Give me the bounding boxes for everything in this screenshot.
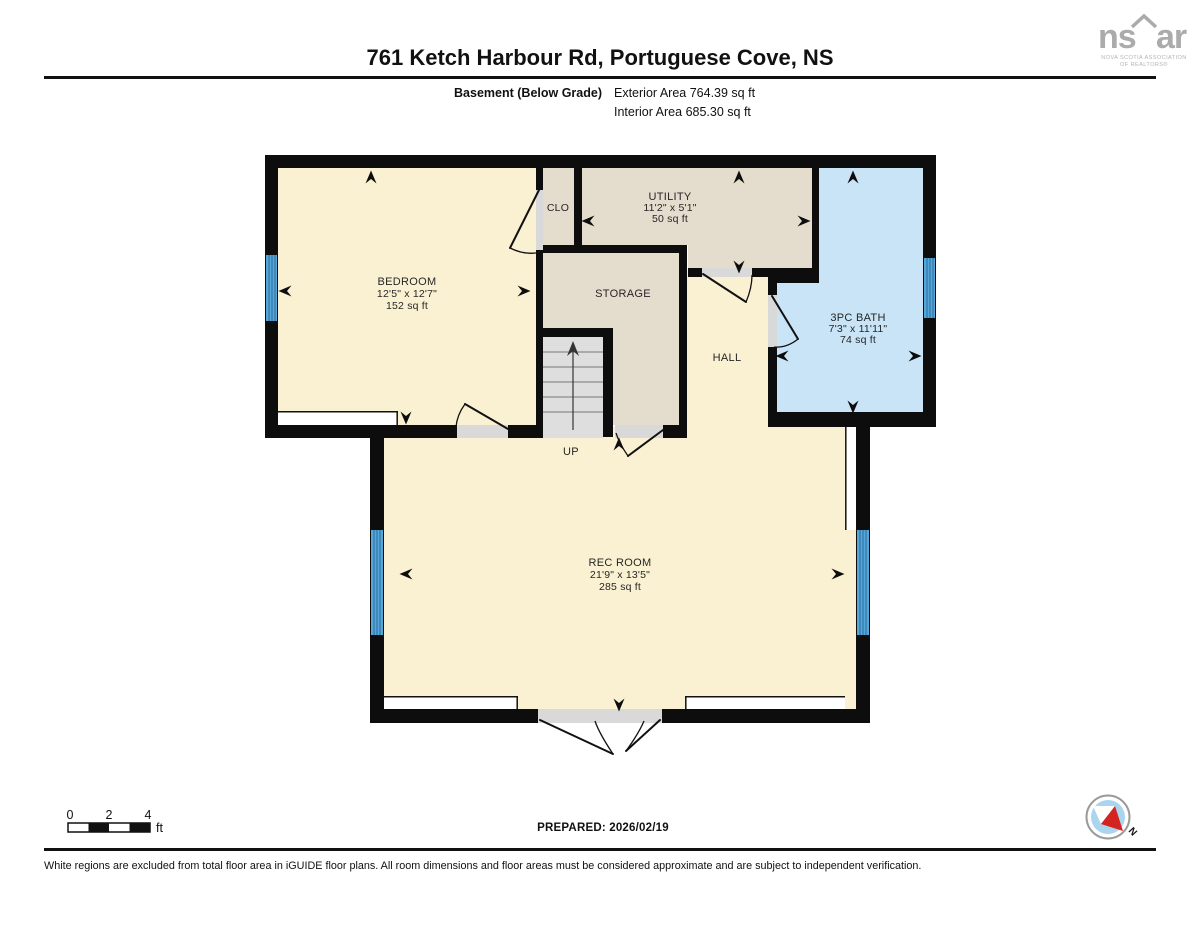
window-rec-left <box>371 530 383 635</box>
rec-room-area: 285 sq ft <box>599 581 641 593</box>
excluded-region-rec-bottom-right <box>685 696 845 709</box>
wall-segment <box>536 245 683 253</box>
scale-unit: ft <box>156 821 163 835</box>
wall-segment <box>536 328 613 337</box>
wall-segment <box>662 709 870 723</box>
scale-bar-segment <box>89 823 110 832</box>
wall-segment <box>688 268 702 277</box>
floorplan-page: 761 Ketch Harbour Rd, Portuguese Cove, N… <box>0 0 1200 927</box>
hall-label: HALL <box>713 352 742 364</box>
bath-area: 74 sq ft <box>840 334 876 346</box>
rec-room-floor-edge <box>845 530 856 709</box>
excluded-region-rec-bottom-left <box>384 696 518 709</box>
wall-segment <box>768 268 819 283</box>
storage-label: STORAGE <box>595 288 651 300</box>
wall-segment <box>536 250 543 438</box>
window-bedroom-left <box>266 255 277 321</box>
threshold <box>536 190 543 250</box>
scale-tick-0: 0 <box>67 808 74 822</box>
closet-label: CLO <box>547 202 569 214</box>
wall-segment <box>574 168 582 247</box>
header: 761 Ketch Harbour Rd, Portuguese Cove, N… <box>44 45 1156 119</box>
wall-segment <box>752 268 768 277</box>
compass: N <box>1087 796 1139 839</box>
logo-caption-1: NOVA SCOTIA ASSOCIATION <box>1101 55 1186 61</box>
interior-area: Interior Area 685.30 sq ft <box>614 105 751 119</box>
staircase <box>543 337 603 438</box>
wall-segment <box>663 425 687 438</box>
scale-bar: 0 2 4 ft <box>67 808 164 835</box>
bedroom-label: BEDROOM <box>378 276 437 288</box>
excluded-region-rec-right <box>845 427 856 530</box>
wall-segment <box>679 245 687 437</box>
floor-label: Basement (Below Grade) <box>454 86 602 100</box>
utility-area: 50 sq ft <box>652 213 688 225</box>
logo-caption-2: OF REALTORS® <box>1120 61 1168 68</box>
wall-segment <box>265 155 936 168</box>
door-rec-double-exterior <box>540 720 660 754</box>
logo-text-right: ar <box>1156 18 1187 56</box>
wall-segment <box>536 168 543 190</box>
wall-segment <box>768 283 777 295</box>
prepared-date: PREPARED: 2026/02/19 <box>537 822 669 834</box>
window-rec-right <box>857 530 869 635</box>
window-bath-right <box>924 258 935 318</box>
wall-segment <box>768 347 777 412</box>
rec-room-label: REC ROOM <box>589 557 652 569</box>
logo-text-left: ns <box>1098 18 1136 56</box>
bedroom-area: 152 sq ft <box>386 300 428 312</box>
wall-segment <box>603 328 613 437</box>
page-title: 761 Ketch Harbour Rd, Portuguese Cove, N… <box>367 45 834 70</box>
disclaimer-text: White regions are excluded from total fl… <box>44 860 921 872</box>
wall-segment <box>768 412 936 427</box>
stairs-up-label: UP <box>563 446 579 458</box>
threshold <box>702 268 752 277</box>
scale-tick-4: 4 <box>145 808 152 822</box>
scale-bar-segment <box>130 823 151 832</box>
excluded-region-bedroom <box>278 411 398 425</box>
header-divider <box>44 76 1156 79</box>
exterior-area: Exterior Area 764.39 sq ft <box>614 86 756 100</box>
wall-segment <box>370 709 538 723</box>
threshold <box>457 425 508 438</box>
footer: White regions are excluded from total fl… <box>44 848 1156 872</box>
nsar-logo: ns ar NOVA SCOTIA ASSOCIATION OF REALTOR… <box>1098 16 1187 68</box>
bedroom-dims: 12'5" x 12'7" <box>377 288 437 300</box>
rec-room-dims: 21'9" x 13'5" <box>590 569 650 581</box>
wall-segment <box>812 168 819 275</box>
footer-divider <box>44 848 1156 851</box>
scale-tick-2: 2 <box>106 808 113 822</box>
